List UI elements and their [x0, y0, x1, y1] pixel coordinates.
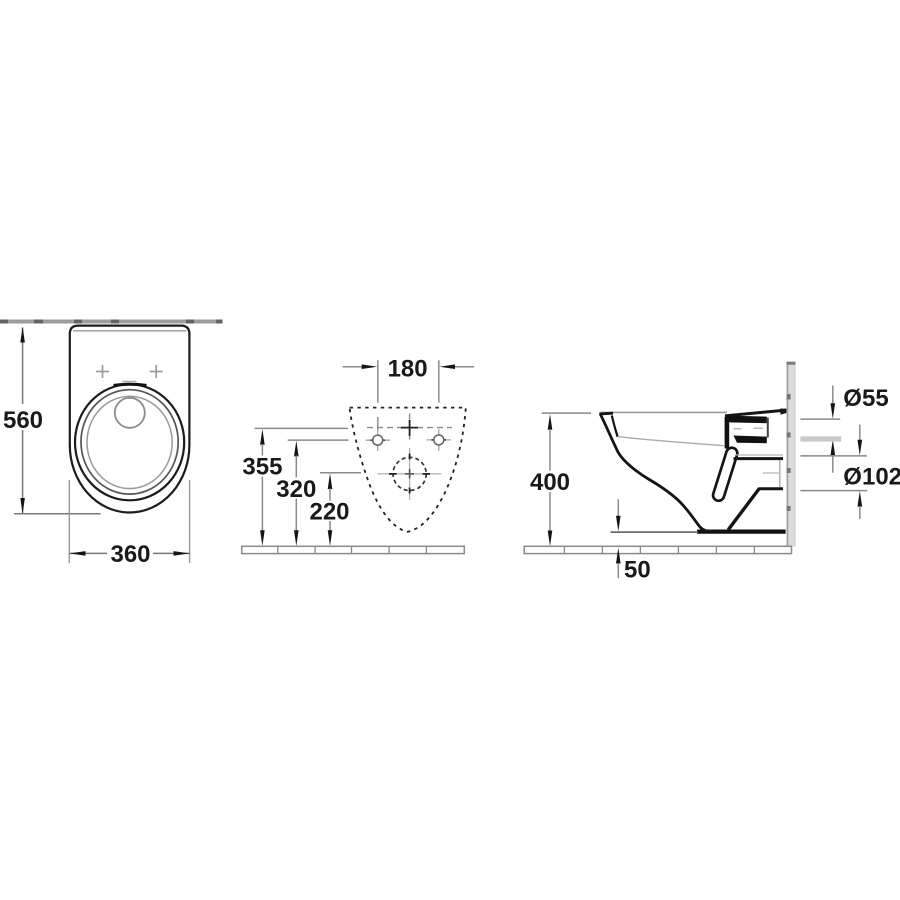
svg-text:Ø55: Ø55	[843, 385, 888, 412]
svg-text:Ø102: Ø102	[843, 464, 900, 491]
svg-text:400: 400	[530, 469, 570, 496]
svg-text:360: 360	[110, 541, 150, 568]
svg-text:180: 180	[388, 356, 428, 383]
svg-text:560: 560	[3, 407, 43, 434]
svg-text:220: 220	[309, 498, 349, 525]
svg-text:50: 50	[624, 557, 651, 584]
